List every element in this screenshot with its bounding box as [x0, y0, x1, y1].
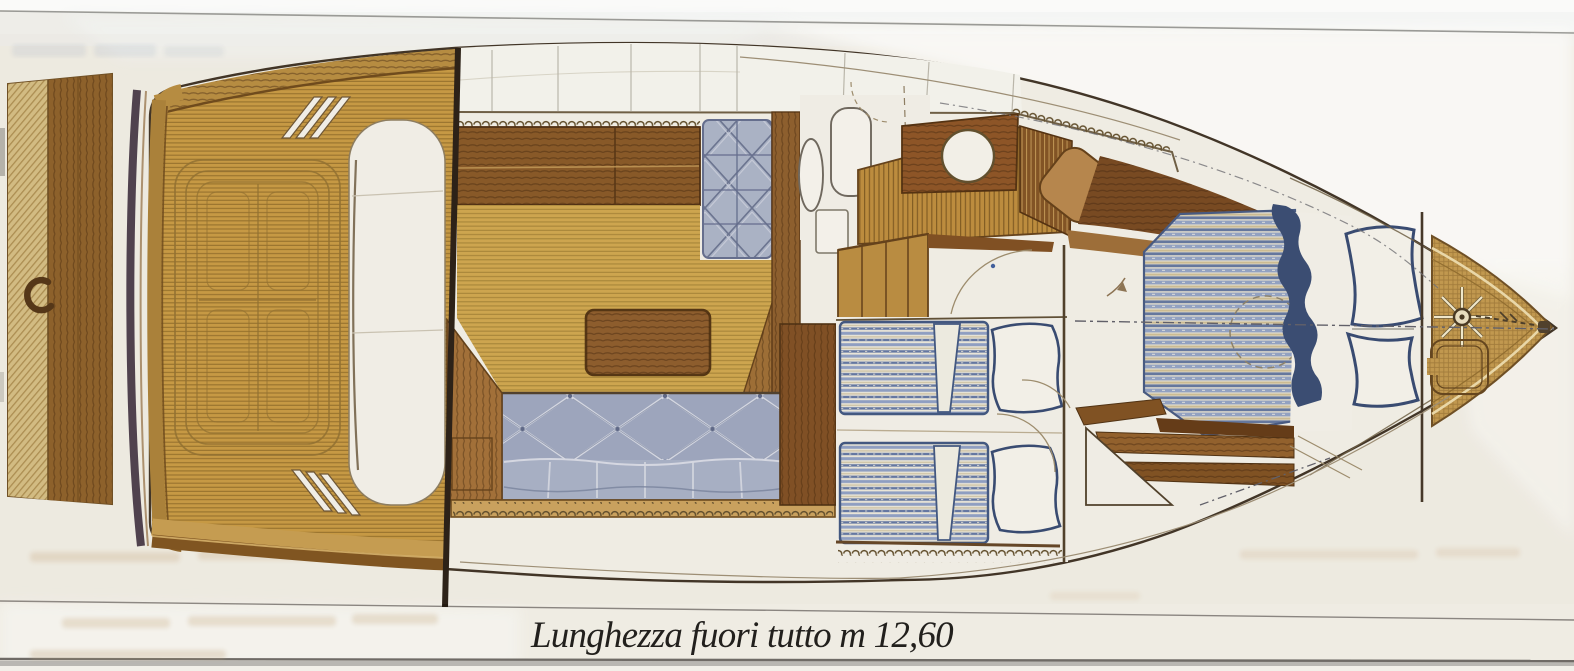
svg-text:Lunghezza fuori tutto m 12,60: Lunghezza fuori tutto m 12,60	[530, 615, 954, 656]
